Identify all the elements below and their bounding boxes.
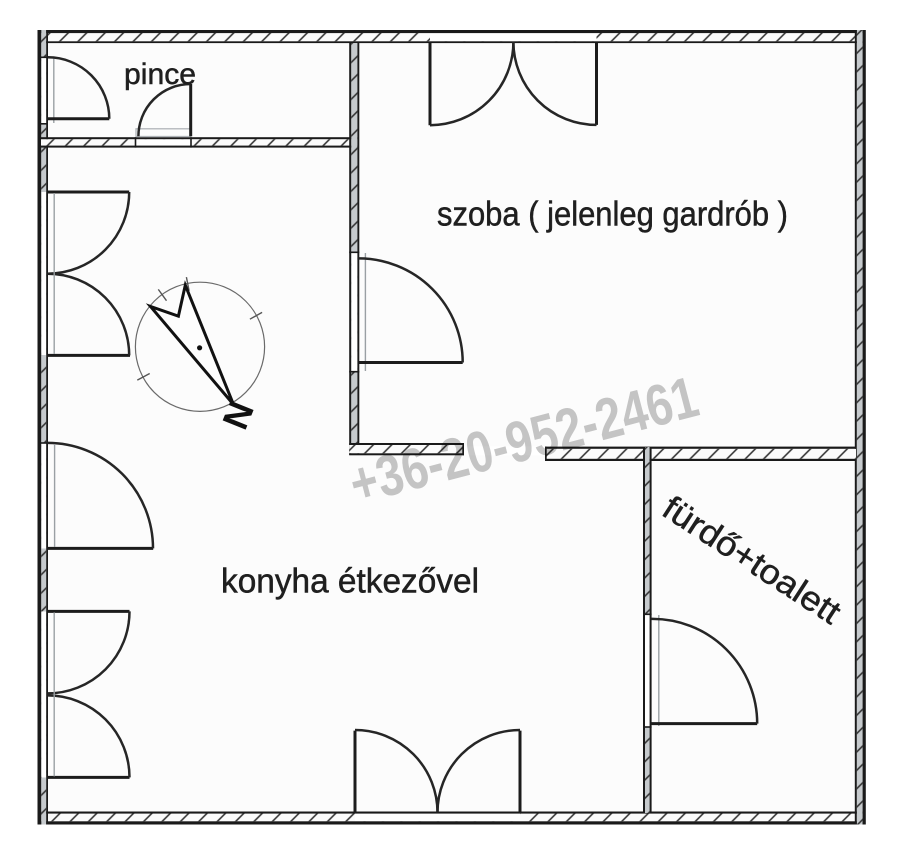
svg-text:konyha étkezővel: konyha étkezővel xyxy=(221,563,479,601)
svg-text:szoba ( jelenleg gardrób ): szoba ( jelenleg gardrób ) xyxy=(437,196,788,234)
svg-text:pince: pince xyxy=(124,58,196,91)
